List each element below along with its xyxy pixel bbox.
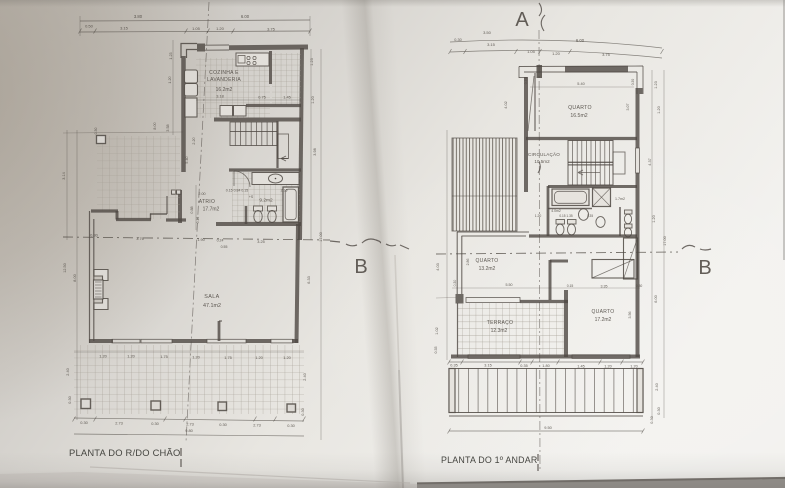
svg-text:3.07: 3.07: [626, 104, 630, 111]
svg-text:2.00: 2.00: [198, 192, 205, 196]
svg-text:COZINHA E: COZINHA E: [209, 70, 239, 76]
svg-text:47.1m2: 47.1m2: [203, 303, 221, 309]
svg-text:3.14: 3.14: [62, 172, 66, 179]
svg-text:0.55: 0.55: [221, 245, 228, 249]
svg-text:0.30: 0.30: [650, 416, 654, 423]
svg-text:2.20: 2.20: [192, 137, 196, 144]
svg-text:0.30: 0.30: [68, 396, 72, 403]
svg-text:1.20: 1.20: [255, 355, 263, 360]
svg-text:2.40: 2.40: [303, 373, 307, 380]
svg-text:0.24: 0.24: [217, 239, 224, 243]
svg-text:3.15: 3.15: [120, 26, 129, 31]
svg-text:0.75: 0.75: [258, 95, 266, 100]
svg-text:0.30: 0.30: [453, 280, 457, 287]
svg-text:QUARTO: QUARTO: [568, 105, 592, 111]
svg-text:3.75: 3.75: [602, 52, 611, 57]
svg-text:A: A: [515, 9, 529, 31]
svg-text:8.00: 8.00: [153, 122, 157, 129]
svg-text:0.15: 0.15: [567, 284, 574, 288]
svg-text:0.35: 0.35: [450, 364, 457, 368]
svg-text:4.03: 4.03: [436, 263, 440, 270]
svg-text:1.02: 1.02: [435, 327, 439, 334]
svg-text:6.00: 6.00: [654, 295, 658, 302]
svg-text:1.05: 1.05: [192, 26, 201, 31]
svg-text:1.80: 1.80: [542, 364, 549, 368]
svg-text:3.15: 3.15: [484, 364, 491, 368]
svg-text:1.20: 1.20: [535, 214, 542, 218]
svg-text:+S: +S: [249, 195, 254, 199]
svg-text:0.30: 0.30: [287, 423, 295, 428]
svg-text:QUARTO: QUARTO: [475, 258, 498, 264]
svg-text:1.7m2: 1.7m2: [615, 197, 625, 201]
svg-text:3.58: 3.58: [166, 124, 170, 131]
svg-text:1.20: 1.20: [604, 365, 611, 369]
svg-text:1.75: 1.75: [160, 354, 168, 359]
svg-text:9.80: 9.80: [185, 428, 193, 433]
svg-text:17.2m2: 17.2m2: [595, 317, 612, 323]
svg-text:17.00: 17.00: [663, 236, 667, 246]
svg-text:0.30: 0.30: [94, 128, 98, 135]
svg-text:1.20: 1.20: [99, 354, 107, 359]
svg-text:4.37: 4.37: [648, 158, 652, 165]
svg-text:16.2m2: 16.2m2: [216, 87, 233, 93]
svg-text:1.20: 1.20: [657, 106, 661, 113]
svg-text:CIRCULAÇÃO: CIRCULAÇÃO: [528, 151, 560, 157]
svg-text:3.50: 3.50: [483, 30, 492, 35]
svg-text:B: B: [354, 256, 367, 278]
svg-text:1.45: 1.45: [577, 365, 584, 369]
svg-text:2.40: 2.40: [66, 368, 70, 375]
svg-text:0.30: 0.30: [301, 408, 305, 415]
svg-text:13.2m2: 13.2m2: [479, 266, 496, 272]
svg-text:QUARTO: QUARTO: [591, 309, 614, 315]
svg-text:1.20: 1.20: [192, 355, 200, 360]
svg-text:1.20: 1.20: [652, 215, 656, 222]
svg-text:1.90: 1.90: [197, 238, 204, 242]
svg-text:1.75: 1.75: [224, 355, 232, 360]
svg-text:0.15 1.35: 0.15 1.35: [559, 214, 573, 218]
svg-text:0.35: 0.35: [434, 347, 438, 354]
svg-text:3.76: 3.76: [136, 237, 143, 241]
svg-text:2.16: 2.16: [281, 189, 288, 193]
svg-text:0.30: 0.30: [219, 422, 227, 427]
svg-text:3.15: 3.15: [487, 42, 496, 47]
svg-text:2.73: 2.73: [115, 421, 123, 426]
svg-text:10.5m2: 10.5m2: [534, 159, 550, 164]
svg-text:1.20: 1.20: [127, 354, 135, 359]
svg-text:1.20: 1.20: [311, 96, 315, 103]
svg-text:4.02: 4.02: [504, 101, 508, 108]
svg-text:LAVANDERIA: LAVANDERIA: [207, 77, 241, 83]
svg-text:1.20: 1.20: [168, 76, 172, 83]
svg-text:3.98: 3.98: [313, 148, 317, 155]
svg-text:12.50: 12.50: [63, 263, 67, 273]
svg-text:1.05: 1.05: [527, 49, 536, 54]
svg-text:1.23: 1.23: [169, 52, 173, 59]
svg-text:3.18: 3.18: [216, 94, 224, 99]
svg-text:17.00: 17.00: [319, 232, 323, 242]
svg-text:0.30: 0.30: [636, 284, 643, 288]
svg-text:6.33: 6.33: [307, 276, 311, 283]
svg-text:4.0m2: 4.0m2: [551, 209, 561, 213]
svg-text:16.5m2: 16.5m2: [570, 113, 587, 119]
svg-text:1.23: 1.23: [310, 58, 314, 65]
svg-text:5.40: 5.40: [577, 82, 584, 86]
svg-text:0.30: 0.30: [657, 407, 661, 414]
svg-text:0.30: 0.30: [151, 421, 159, 426]
svg-text:12.3m2: 12.3m2: [491, 328, 508, 334]
svg-text:6.00: 6.00: [241, 14, 250, 19]
svg-text:1.20: 1.20: [216, 26, 225, 31]
svg-text:1.45: 1.45: [283, 95, 291, 100]
svg-text:0.30: 0.30: [454, 38, 461, 42]
svg-text:6.00: 6.00: [576, 38, 585, 43]
svg-text:2.86: 2.86: [466, 259, 470, 266]
svg-text:2.73: 2.73: [253, 423, 261, 428]
svg-text:2.73: 2.73: [186, 422, 194, 427]
svg-text:9.50: 9.50: [544, 425, 552, 430]
svg-text:3.80: 3.80: [134, 14, 143, 19]
svg-text:0.15: 0.15: [196, 217, 200, 224]
svg-text:0.35: 0.35: [520, 364, 527, 368]
svg-text:8.00: 8.00: [73, 274, 77, 281]
svg-text:1.20: 1.20: [552, 51, 561, 56]
svg-text:TERRAÇO: TERRAÇO: [487, 320, 514, 326]
svg-text:0.88: 0.88: [190, 206, 194, 213]
svg-text:1.20: 1.20: [283, 355, 291, 360]
svg-text:5.50: 5.50: [506, 283, 513, 287]
svg-text:1.20: 1.20: [630, 365, 637, 369]
svg-text:0.30: 0.30: [524, 78, 528, 85]
svg-text:B: B: [698, 257, 711, 279]
svg-text:3.25: 3.25: [257, 240, 264, 244]
svg-text:0.30: 0.30: [631, 79, 635, 86]
svg-text:9.2m2: 9.2m2: [259, 198, 273, 204]
svg-text:2.40: 2.40: [655, 383, 659, 390]
svg-text:0.15 0.84 0.15: 0.15 0.84 0.15: [226, 189, 248, 193]
svg-text:0.50: 0.50: [85, 24, 94, 29]
svg-text:3.56: 3.56: [628, 312, 632, 319]
svg-text:17.7m2: 17.7m2: [203, 207, 220, 213]
svg-text:3.75: 3.75: [267, 27, 276, 32]
svg-text:0.35: 0.35: [587, 214, 593, 218]
svg-text:3.35: 3.35: [601, 285, 608, 289]
svg-text:SALA: SALA: [204, 294, 219, 300]
svg-text:5.40: 5.40: [185, 156, 189, 163]
svg-text:1.23: 1.23: [654, 81, 658, 88]
svg-text:0.30: 0.30: [80, 420, 88, 425]
svg-text:ATRIO: ATRIO: [199, 199, 215, 205]
